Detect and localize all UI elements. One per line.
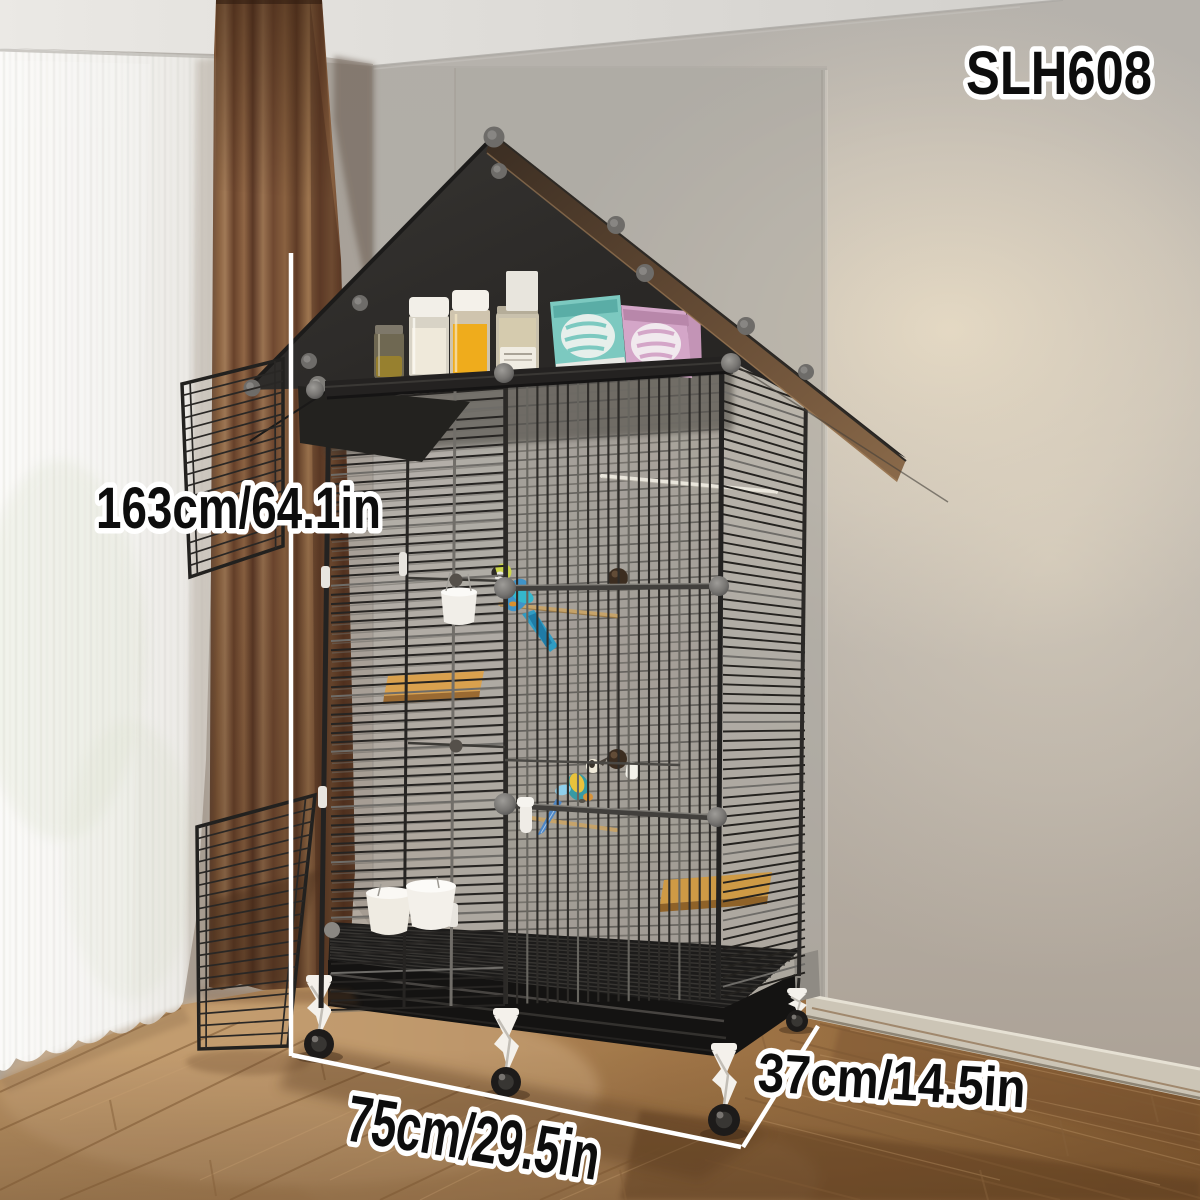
svg-text:163cm/64.1in: 163cm/64.1in — [96, 476, 381, 541]
svg-text:SLH608: SLH608 — [966, 39, 1152, 107]
